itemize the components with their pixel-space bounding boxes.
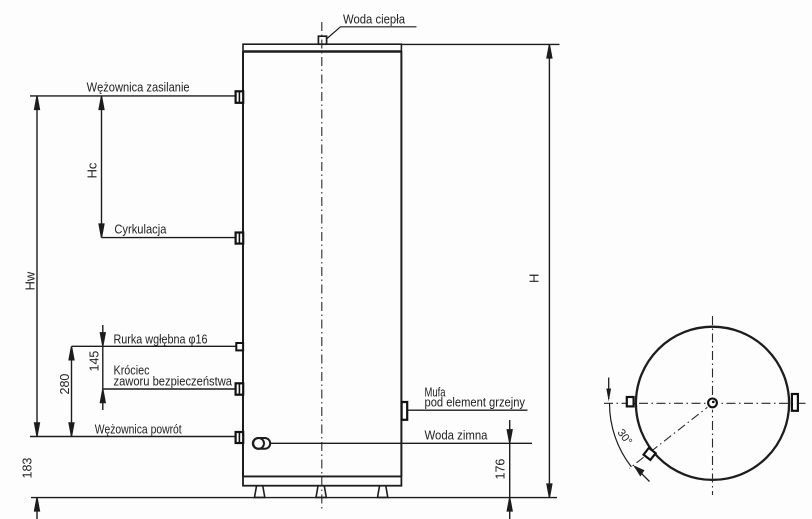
svg-text:Hw: Hw xyxy=(22,271,37,290)
svg-text:280: 280 xyxy=(58,374,72,395)
svg-text:Rurka wgłębna φ16: Rurka wgłębna φ16 xyxy=(114,331,208,346)
svg-text:Wężownica zasilanie: Wężownica zasilanie xyxy=(87,80,190,95)
svg-text:H: H xyxy=(527,274,542,283)
svg-text:145: 145 xyxy=(87,351,101,372)
svg-text:pod element grzejny: pod element grzejny xyxy=(425,394,526,409)
svg-text:Wężownica powrót: Wężownica powrót xyxy=(95,421,182,436)
svg-text:183: 183 xyxy=(21,458,35,479)
svg-text:Woda ciepła: Woda ciepła xyxy=(343,11,406,26)
svg-text:zaworu bezpieczeństwa: zaworu bezpieczeństwa xyxy=(114,374,233,389)
svg-text:Hc: Hc xyxy=(85,162,100,178)
svg-text:176: 176 xyxy=(494,459,508,480)
svg-text:Cyrkulacja: Cyrkulacja xyxy=(114,222,167,237)
svg-text:Woda zimna: Woda zimna xyxy=(425,428,489,443)
